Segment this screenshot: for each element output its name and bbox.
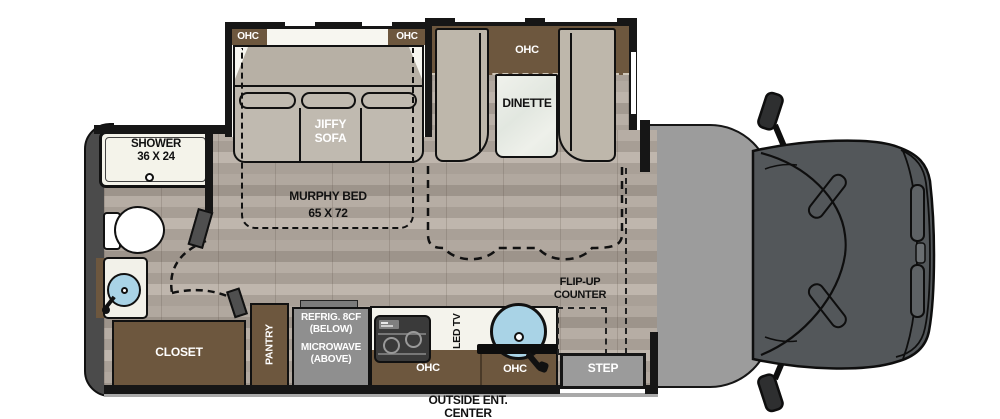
- led-tv-icon: [477, 344, 558, 354]
- wall-slideout-top: [225, 22, 432, 29]
- dinette-bench-right: [558, 28, 616, 162]
- step-label: STEP: [560, 362, 646, 376]
- flip-up-counter-outline: [557, 307, 607, 355]
- dinette-label: DINETTE: [486, 97, 568, 111]
- shower-label: SHOWER36 X 24: [104, 138, 208, 164]
- closet-label: CLOSET: [112, 346, 246, 360]
- wall-right-stub: [640, 120, 650, 172]
- outside-ent-label: OUTSIDE ENT.CENTER: [408, 394, 528, 419]
- wall-slideout-left: [225, 22, 232, 137]
- slideout-window: [285, 22, 315, 26]
- slideout-window: [362, 22, 392, 26]
- rv-floorplan: SHOWER36 X 24 CLOSET PANTRY REFRIG. 8CF(…: [0, 0, 1000, 419]
- bath-faucet-knob-icon: [102, 306, 110, 314]
- dinette-ohc-label: OHC: [497, 44, 557, 57]
- wall-shower-right: [205, 130, 213, 212]
- slideout-ohc-left-label: OHC: [229, 31, 267, 43]
- dinette-table: [495, 74, 558, 158]
- pantry-label: PANTRY: [250, 303, 289, 387]
- headlight-icon: [911, 265, 924, 317]
- kitchen-ohc-left-label: OHC: [398, 362, 458, 375]
- shower-drain-icon: [145, 173, 154, 182]
- led-tv-label: LED TV: [448, 303, 466, 359]
- headlight-icon: [911, 185, 924, 241]
- refrigerator-label: REFRIG. 8CF(BELOW) MICROWAVE(ABOVE): [292, 312, 370, 366]
- wall-entry-right: [650, 332, 658, 389]
- stove-icon: [374, 315, 431, 363]
- slideout-ohc-right-label: OHC: [388, 31, 426, 43]
- flip-up-counter-label: FLIP-UPCOUNTER: [540, 276, 620, 301]
- dinette-bench-left: [435, 28, 489, 162]
- truck-cab-icon: [645, 85, 945, 419]
- wall-slideout-right: [425, 18, 432, 137]
- murphy-bed-label: MURPHY BED65 X 72: [258, 188, 398, 222]
- dinette-window: [455, 18, 525, 22]
- dinette-window: [545, 18, 617, 22]
- dinette-bed-outline: [420, 160, 635, 275]
- toilet-icon: [103, 206, 165, 256]
- dinette-side-window: [631, 52, 636, 114]
- cabinet-seam: [480, 350, 482, 385]
